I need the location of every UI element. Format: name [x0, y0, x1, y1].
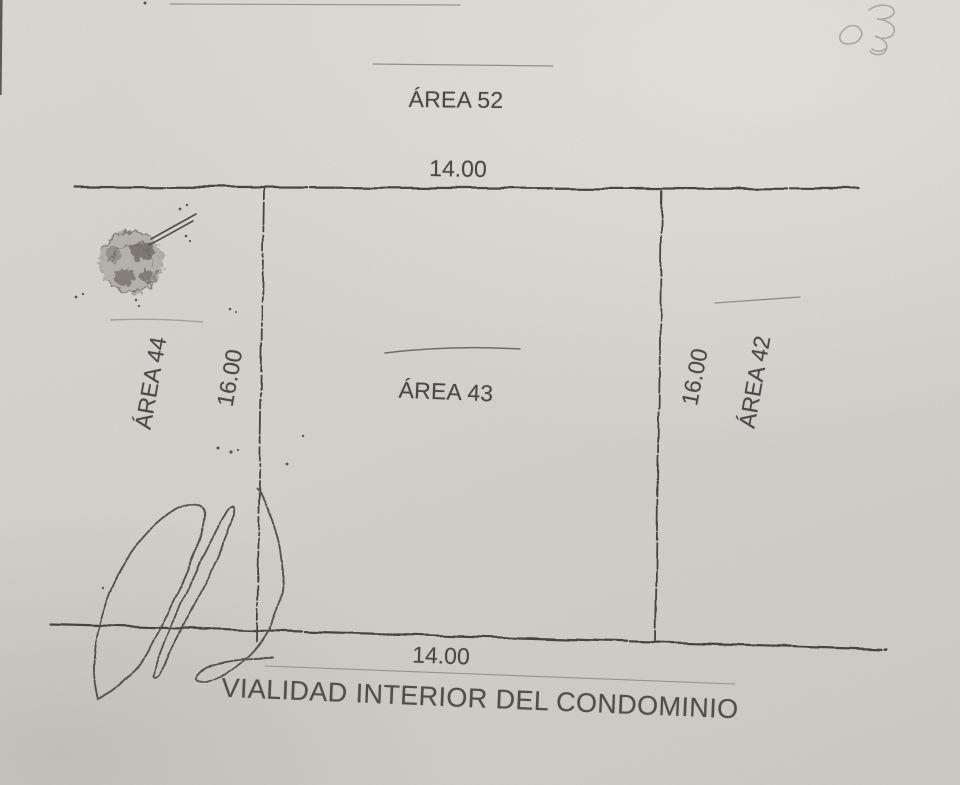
scanned-lot-plan-page: ÁREA 52 14.00 ÁREA 44 16.00 ÁREA 43 16.0…: [0, 0, 960, 785]
label-area-43: ÁREA 43: [398, 377, 494, 408]
label-area-52: ÁREA 52: [408, 86, 503, 114]
dimension-top-width: 14.00: [429, 155, 487, 183]
dimension-bottom-width: 14.00: [412, 642, 470, 671]
